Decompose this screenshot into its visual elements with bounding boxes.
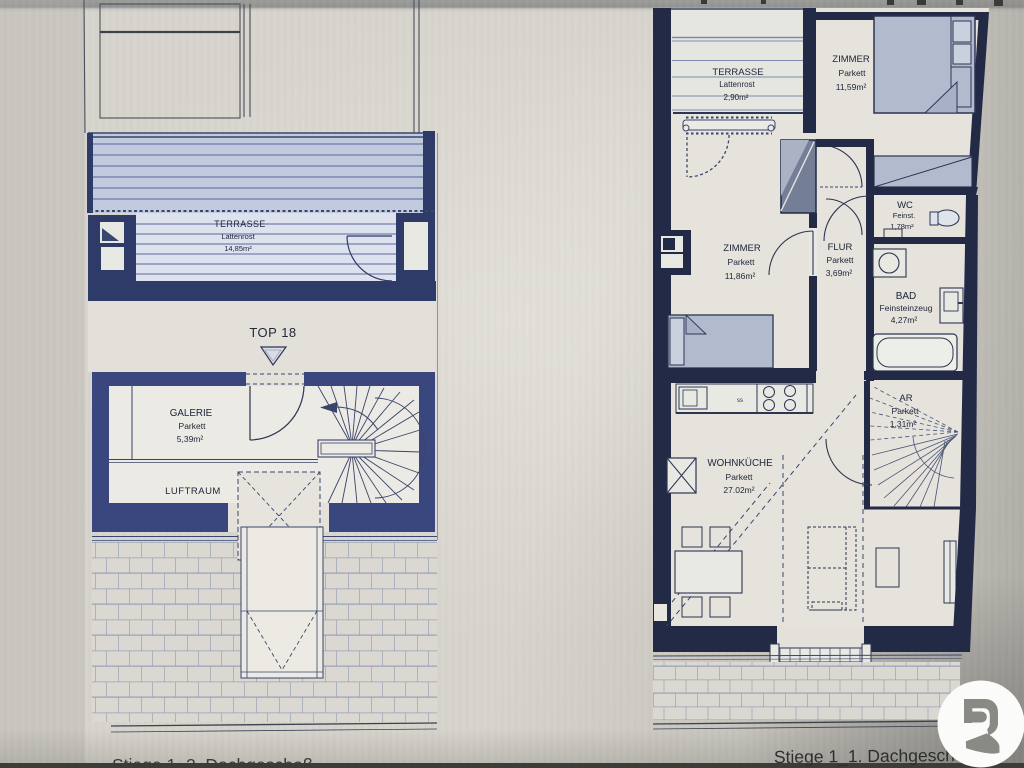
svg-text:Lattenrost: Lattenrost xyxy=(719,80,755,89)
svg-text:WC: WC xyxy=(897,200,913,211)
svg-text:11,86m²: 11,86m² xyxy=(725,271,756,281)
svg-text:Feinst.: Feinst. xyxy=(893,211,916,220)
svg-text:TOP 18: TOP 18 xyxy=(249,325,296,340)
svg-text:Stiege 1_2. Dachgeschoß: Stiege 1_2. Dachgeschoß xyxy=(112,755,313,768)
svg-text:Parkett: Parkett xyxy=(726,472,754,482)
svg-text:14,85m²: 14,85m² xyxy=(224,244,252,253)
svg-text:ZIMMER: ZIMMER xyxy=(832,54,870,65)
svg-text:AR: AR xyxy=(899,393,912,404)
svg-text:Feinsteinzeug: Feinsteinzeug xyxy=(880,303,933,313)
svg-text:5,39m²: 5,39m² xyxy=(177,434,204,444)
svg-text:4,27m²: 4,27m² xyxy=(891,315,918,325)
svg-text:WOHNKÜCHE: WOHNKÜCHE xyxy=(707,458,773,469)
svg-text:BAD: BAD xyxy=(896,291,917,302)
svg-text:Parkett: Parkett xyxy=(839,68,867,78)
svg-text:11,59m²: 11,59m² xyxy=(836,82,867,92)
svg-text:27.02m²: 27.02m² xyxy=(723,485,754,495)
svg-text:Stiege 1_1. Dachgesch: Stiege 1_1. Dachgesch xyxy=(774,745,955,768)
svg-text:FLUR: FLUR xyxy=(828,242,853,253)
svg-text:Lattenrost: Lattenrost xyxy=(221,232,255,241)
svg-text:GALERIE: GALERIE xyxy=(170,408,213,419)
svg-text:Parkett: Parkett xyxy=(827,255,855,265)
svg-text:ZIMMER: ZIMMER xyxy=(723,243,761,254)
svg-text:Parkett: Parkett xyxy=(179,421,207,431)
svg-text:LUFTRAUM: LUFTRAUM xyxy=(165,486,221,497)
svg-text:2,90m²: 2,90m² xyxy=(724,93,749,102)
svg-text:Parkett: Parkett xyxy=(728,257,756,267)
svg-text:ss: ss xyxy=(737,398,743,404)
svg-text:TERRASSE: TERRASSE xyxy=(712,67,763,78)
svg-text:3,69m²: 3,69m² xyxy=(826,268,853,278)
svg-text:TERRASSE: TERRASSE xyxy=(214,219,265,229)
